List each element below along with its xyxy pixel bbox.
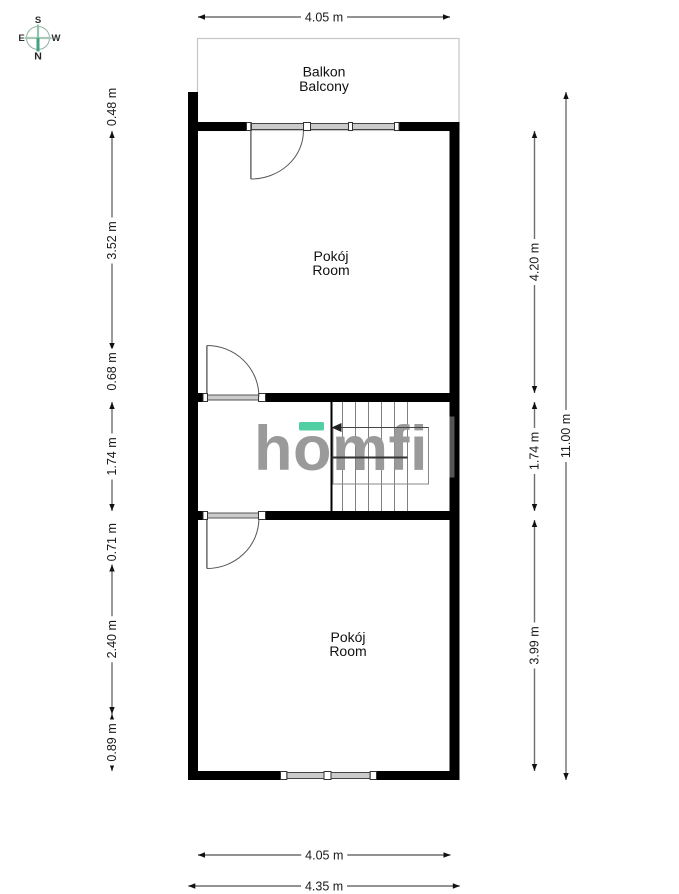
svg-text:4.20 m: 4.20 m <box>528 243 542 281</box>
svg-text:Room: Room <box>329 643 366 659</box>
svg-text:3.52 m: 3.52 m <box>105 221 119 259</box>
svg-text:1.74 m: 1.74 m <box>105 437 119 475</box>
svg-text:4.05 m: 4.05 m <box>305 849 343 863</box>
svg-text:2.40 m: 2.40 m <box>105 620 119 658</box>
svg-text:1.74 m: 1.74 m <box>528 432 542 470</box>
svg-text:0.68 m: 0.68 m <box>105 352 119 390</box>
svg-text:W: W <box>52 33 61 44</box>
svg-text:E: E <box>18 33 24 44</box>
svg-text:0.48 m: 0.48 m <box>105 88 119 126</box>
svg-text:11.00 m: 11.00 m <box>559 414 573 458</box>
svg-text:S: S <box>35 15 41 26</box>
svg-text:Room: Room <box>312 262 349 278</box>
svg-text:N: N <box>34 51 42 63</box>
svg-text:4.35 m: 4.35 m <box>305 880 343 894</box>
svg-text:0.89 m: 0.89 m <box>105 723 119 761</box>
svg-text:0.71 m: 0.71 m <box>105 523 119 561</box>
svg-text:4.05 m: 4.05 m <box>305 11 343 25</box>
svg-text:Balcony: Balcony <box>299 78 349 94</box>
svg-text:3.99 m: 3.99 m <box>528 626 542 664</box>
